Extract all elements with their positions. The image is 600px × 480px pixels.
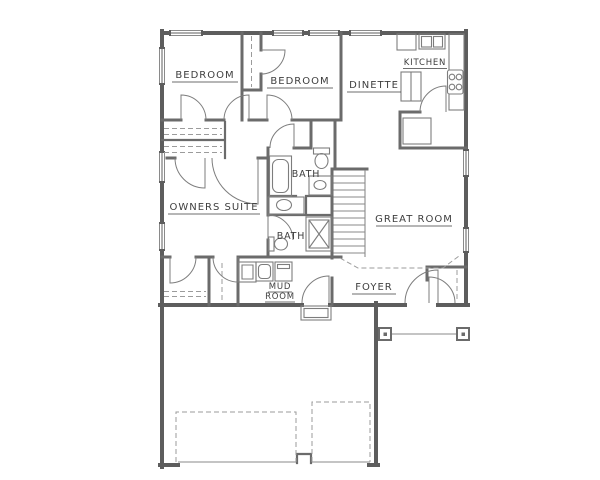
room-label-bath-lower: BATH [277, 231, 305, 242]
floor-plan-canvas: BEDROOM BEDROOM DINETTE KITCHEN OWNERS S… [0, 0, 600, 480]
room-label-bedroom-1: BEDROOM [175, 70, 234, 81]
room-label-mud-room-line1: MUD [269, 282, 292, 292]
garage [176, 402, 370, 463]
garage-door-track-right [312, 402, 370, 462]
exterior-walls [160, 31, 468, 467]
pantry-shelf [403, 118, 431, 144]
room-label-mud-room-line2: ROOM [265, 292, 295, 302]
room-label-bath-upper: BATH [292, 169, 320, 180]
room-labels: BEDROOM BEDROOM DINETTE KITCHEN OWNERS S… [168, 58, 453, 302]
garage-door-track-left [176, 412, 296, 462]
room-label-foyer: FOYER [355, 282, 392, 293]
stove [448, 70, 464, 94]
porch [378, 328, 470, 340]
room-label-kitchen: KITCHEN [404, 58, 446, 68]
floor-plan-drawing: BEDROOM BEDROOM DINETTE KITCHEN OWNERS S… [0, 0, 600, 480]
room-label-great-room: GREAT ROOM [375, 214, 453, 225]
room-label-dinette: DINETTE [349, 80, 399, 91]
room-label-owners-suite: OWNERS SUITE [169, 202, 258, 213]
kitchen-fixtures [397, 34, 464, 144]
room-label-bedroom-2: BEDROOM [270, 76, 329, 87]
